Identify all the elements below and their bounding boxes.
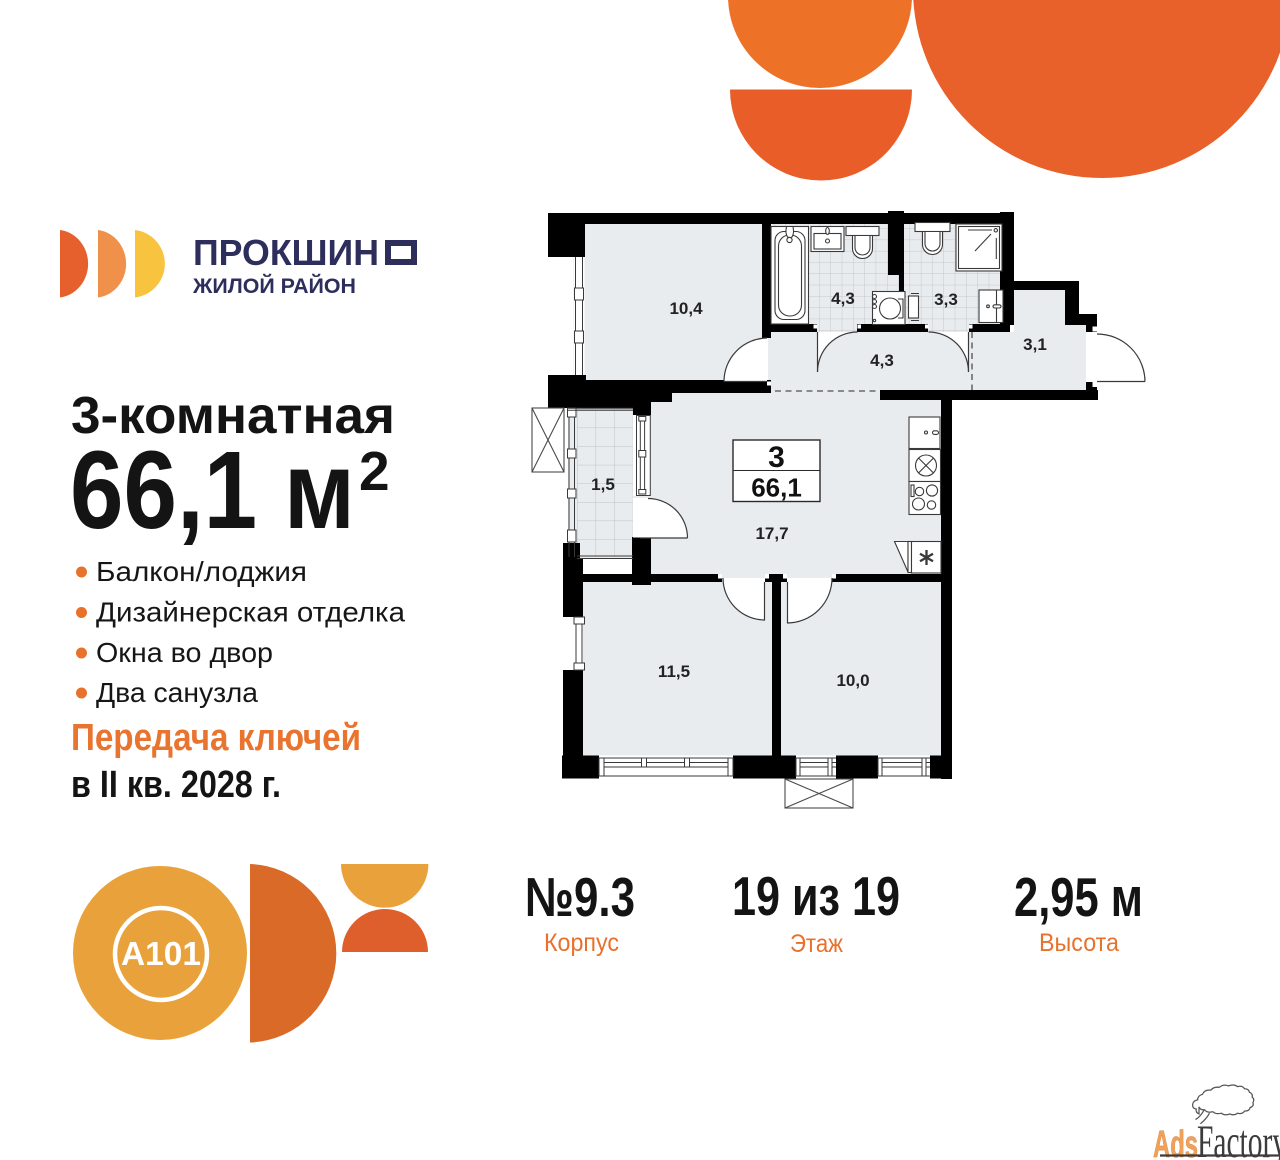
svg-text:Factory: Factory [1197, 1116, 1280, 1160]
svg-text:4,3: 4,3 [870, 351, 894, 370]
svg-text:ПРОКШИН: ПРОКШИН [193, 232, 379, 273]
svg-text:Два санузла: Два санузла [96, 677, 258, 708]
svg-text:Дизайнерская отделка: Дизайнерская отделка [96, 597, 405, 628]
svg-text:17,7: 17,7 [755, 524, 788, 543]
svg-text:11,5: 11,5 [658, 662, 690, 681]
svg-text:66,1: 66,1 [751, 473, 802, 503]
svg-text:Передача ключей: Передача ключей [71, 717, 361, 759]
svg-text:Этаж: Этаж [790, 930, 843, 958]
svg-text:3: 3 [768, 441, 785, 474]
svg-text:66,1 м: 66,1 м [70, 429, 355, 552]
svg-text:Высота: Высота [1039, 929, 1119, 957]
svg-text:10,0: 10,0 [836, 671, 869, 690]
svg-text:в II кв. 2028 г.: в II кв. 2028 г. [71, 764, 281, 806]
svg-text:10,4: 10,4 [669, 299, 703, 318]
svg-text:2,95 м: 2,95 м [1014, 866, 1143, 928]
svg-text:4,3: 4,3 [831, 289, 855, 308]
svg-text:19 из 19: 19 из 19 [732, 865, 900, 927]
svg-text:Корпус: Корпус [544, 929, 619, 957]
svg-text:3,3: 3,3 [934, 290, 958, 309]
svg-text:Окна во двор: Окна во двор [96, 637, 273, 668]
svg-text:3,1: 3,1 [1023, 335, 1047, 354]
svg-text:2: 2 [359, 440, 390, 502]
svg-text:Балкон/лоджия: Балкон/лоджия [96, 556, 307, 587]
svg-text:№9.3: №9.3 [525, 866, 635, 928]
svg-text:1,5: 1,5 [591, 475, 615, 494]
svg-text:ЖИЛОЙ РАЙОН: ЖИЛОЙ РАЙОН [192, 274, 356, 298]
svg-text:А101: А101 [121, 935, 201, 972]
